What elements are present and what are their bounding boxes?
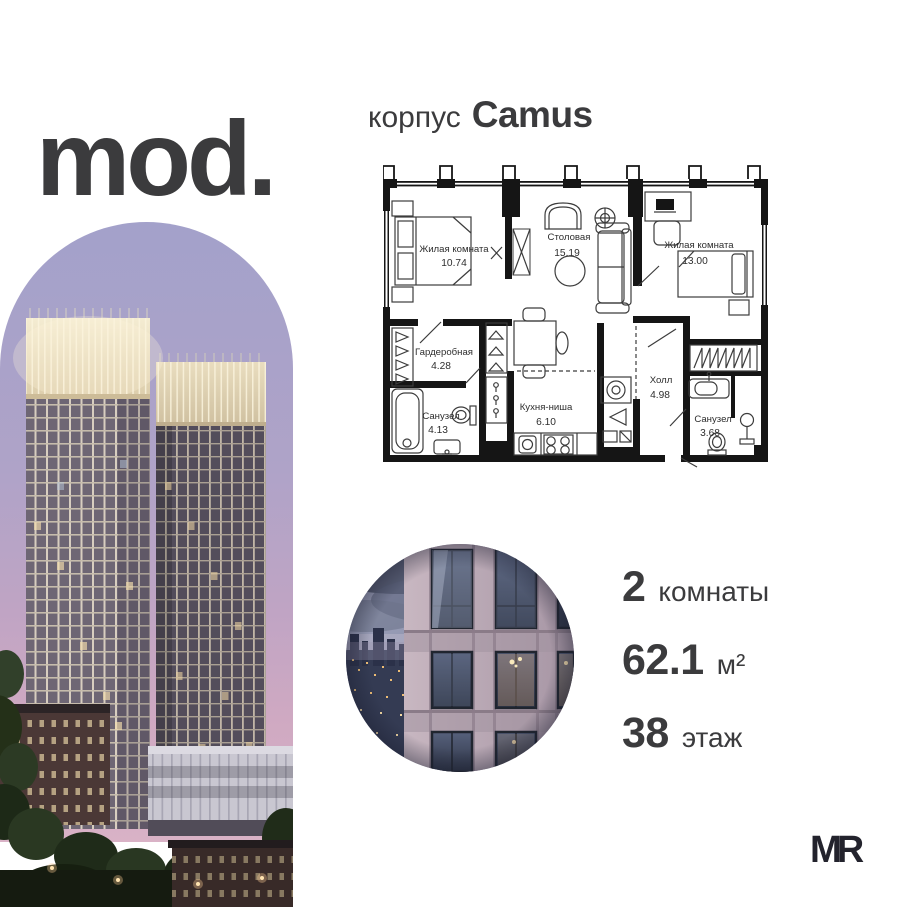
developer-logo: MR [810, 831, 859, 869]
armchair [545, 203, 581, 229]
kitchen-counter [514, 433, 597, 455]
utility-fixtures [603, 409, 631, 442]
tower-right [156, 353, 266, 788]
room-area: 4.28 [431, 361, 451, 372]
desk [645, 192, 691, 245]
building-header: корпус Camus [368, 94, 593, 136]
brick-building-bottom [168, 840, 293, 907]
room-area: 4.98 [650, 390, 670, 401]
towers-photo [0, 222, 293, 907]
room-label: Холл [650, 375, 673, 386]
floor-plan: Жилая комната 10.74 Столовая 15.19 Жилая… [383, 158, 768, 470]
facade-render [346, 544, 574, 772]
towers-render [0, 222, 293, 907]
room-label: Гардеробная [415, 347, 473, 358]
sink-1 [434, 440, 460, 454]
room-label: Санузел [694, 414, 731, 425]
closet-hangers-row [690, 345, 757, 371]
room-area: 4.13 [428, 425, 448, 436]
listing-card: mod. корпус Camus [0, 0, 907, 907]
washing-machine [601, 377, 631, 403]
room-area: 15.19 [554, 248, 580, 259]
area-value: 62.1 [622, 639, 704, 682]
stat-area: 62.1 м² [622, 639, 769, 712]
round-table [555, 256, 585, 286]
facade-photo [346, 544, 574, 772]
utility-cupboard [486, 377, 507, 423]
room-label: Жилая комната [419, 244, 489, 255]
facade-ticks [383, 166, 760, 179]
area-unit: м² [717, 651, 746, 679]
building-name: Camus [472, 94, 593, 136]
stat-rooms: 2 комнаты [622, 566, 769, 639]
hall-closet-hangers [486, 323, 507, 373]
floor-plan-drawing: Жилая комната 10.74 Столовая 15.19 Жилая… [383, 158, 768, 470]
room-area: 13.00 [682, 256, 708, 267]
sink-2 [689, 372, 729, 398]
room-label: Жилая комната [664, 240, 734, 251]
wardrobe-hangers [392, 328, 413, 386]
water-pipe-fixture [740, 414, 754, 445]
floor-label: этаж [682, 724, 742, 752]
building-prefix: корпус [368, 101, 461, 135]
vignette [346, 544, 574, 772]
bathtub [392, 389, 423, 453]
ceiling-lamp-symbol [595, 208, 615, 228]
kitchen-table [514, 308, 568, 378]
sofa [596, 223, 631, 313]
room-label: Санузел [422, 411, 459, 422]
room-label: Кухня-ниша [520, 402, 573, 413]
room-label: Столовая [548, 232, 591, 243]
room-area: 3.68 [700, 428, 720, 439]
floor-number: 38 [622, 712, 669, 755]
room-area: 10.74 [441, 258, 467, 269]
apartment-stats: 2 комнаты 62.1 м² 38 этаж [622, 566, 769, 785]
rooms-label: комнаты [658, 578, 769, 606]
rooms-count: 2 [622, 566, 645, 609]
room-area: 6.10 [536, 417, 556, 428]
brand-logo: mod. [36, 106, 273, 212]
stat-floor: 38 этаж [622, 712, 769, 785]
